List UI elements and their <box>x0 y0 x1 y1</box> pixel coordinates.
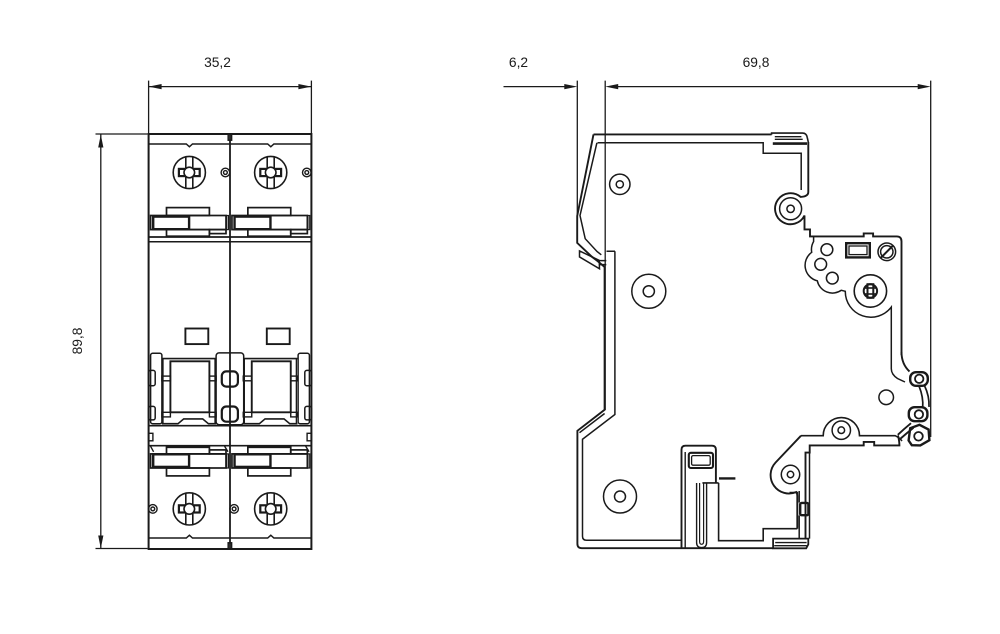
svg-text:89,8: 89,8 <box>70 327 85 354</box>
svg-text:6,2: 6,2 <box>509 55 528 70</box>
svg-text:69,8: 69,8 <box>743 55 770 70</box>
svg-text:35,2: 35,2 <box>204 55 231 70</box>
